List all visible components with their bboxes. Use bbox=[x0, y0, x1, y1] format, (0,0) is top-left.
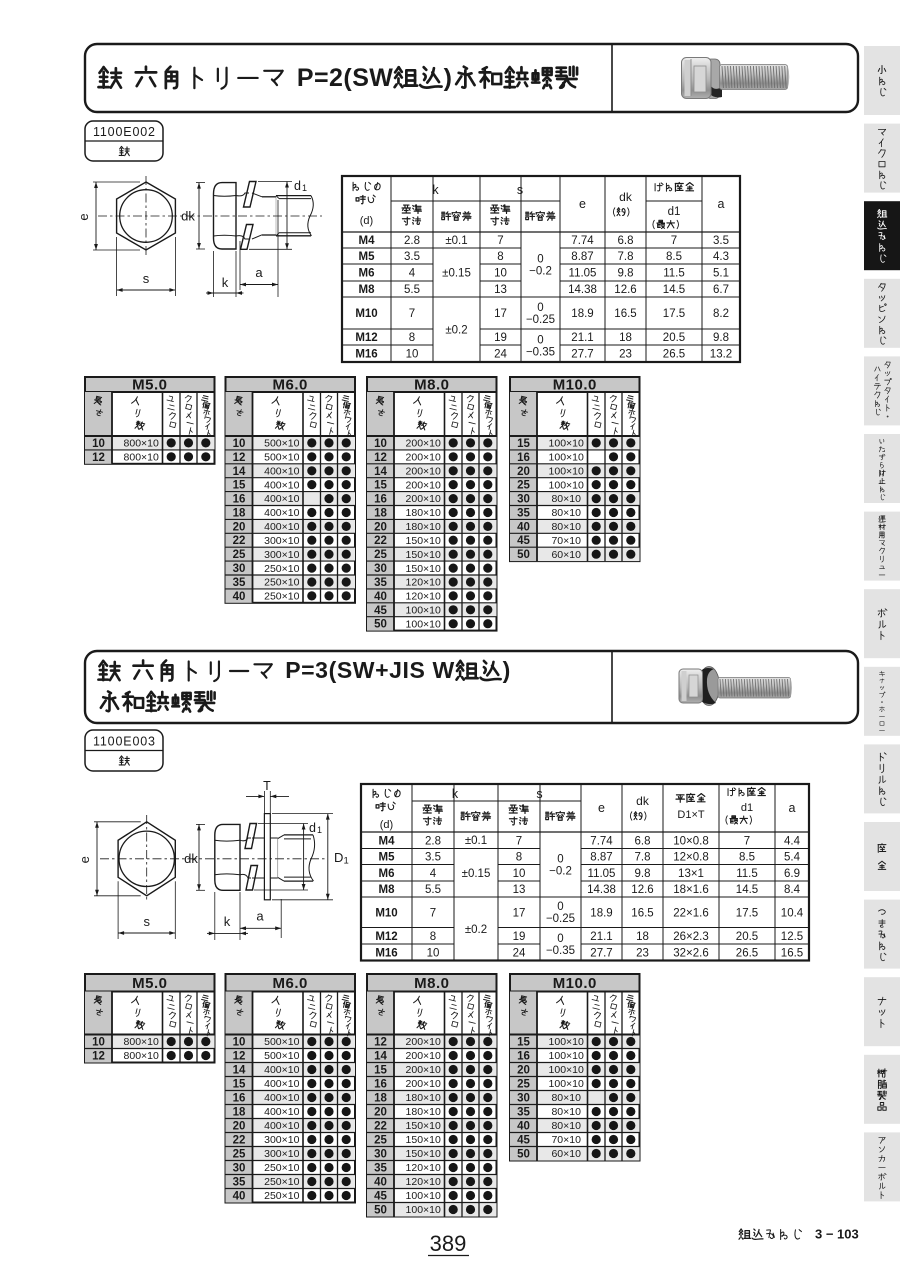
svg-text:M10.0: M10.0 bbox=[553, 377, 597, 394]
svg-text:400×10: 400×10 bbox=[264, 479, 299, 491]
svg-text:60×10: 60×10 bbox=[551, 549, 581, 561]
svg-text:4.4: 4.4 bbox=[784, 835, 801, 847]
svg-text:M5: M5 bbox=[379, 852, 396, 864]
svg-text:7.74: 7.74 bbox=[571, 235, 594, 247]
svg-text:M4: M4 bbox=[379, 835, 396, 847]
svg-text:s: s bbox=[517, 183, 523, 197]
svg-text:6.9: 6.9 bbox=[784, 868, 800, 880]
svg-text:1100E003: 1100E003 bbox=[93, 735, 155, 749]
svg-text:100×10: 100×10 bbox=[549, 452, 584, 464]
svg-text:250×10: 250×10 bbox=[264, 563, 299, 575]
svg-text:12: 12 bbox=[233, 452, 246, 464]
svg-text:M10: M10 bbox=[375, 907, 397, 919]
svg-text:35: 35 bbox=[233, 577, 246, 589]
svg-text:16.5: 16.5 bbox=[614, 308, 636, 320]
svg-text:±0.2: ±0.2 bbox=[445, 325, 467, 337]
svg-text:14: 14 bbox=[233, 1065, 246, 1077]
svg-text:a: a bbox=[256, 909, 264, 924]
svg-text:50: 50 bbox=[517, 1149, 530, 1161]
svg-text:20.5: 20.5 bbox=[736, 931, 758, 943]
svg-text:(d): (d) bbox=[360, 215, 373, 227]
svg-text:14: 14 bbox=[374, 1051, 387, 1063]
svg-text:14: 14 bbox=[374, 466, 387, 478]
svg-text:M6: M6 bbox=[379, 868, 395, 880]
svg-text:M8: M8 bbox=[379, 884, 396, 896]
svg-text:300×10: 300×10 bbox=[264, 549, 299, 561]
svg-text:100×10: 100×10 bbox=[549, 1050, 584, 1062]
svg-text:dk: dk bbox=[619, 190, 633, 204]
svg-text:17.5: 17.5 bbox=[736, 907, 758, 919]
svg-text:250×10: 250×10 bbox=[264, 1190, 299, 1202]
svg-text:14: 14 bbox=[233, 466, 246, 478]
svg-text:10: 10 bbox=[494, 268, 507, 280]
svg-text:40: 40 bbox=[233, 591, 246, 603]
svg-text:7.8: 7.8 bbox=[618, 251, 634, 263]
svg-text:s: s bbox=[143, 914, 150, 929]
svg-text:100×10: 100×10 bbox=[549, 1036, 584, 1048]
svg-text:9.8: 9.8 bbox=[635, 868, 651, 880]
svg-text:500×10: 500×10 bbox=[264, 1050, 299, 1062]
svg-text:1: 1 bbox=[344, 856, 349, 867]
svg-text:M5.0: M5.0 bbox=[132, 377, 167, 394]
svg-text:12: 12 bbox=[374, 452, 387, 464]
svg-text:±0.15: ±0.15 bbox=[462, 868, 491, 880]
svg-text:19: 19 bbox=[494, 332, 507, 344]
svg-text:8: 8 bbox=[430, 931, 436, 943]
svg-text:26×2.3: 26×2.3 bbox=[673, 931, 709, 943]
svg-text:18: 18 bbox=[233, 1107, 246, 1119]
svg-text:): ) bbox=[444, 64, 452, 92]
svg-text:40: 40 bbox=[374, 591, 387, 603]
svg-text:−0.35: −0.35 bbox=[546, 945, 575, 957]
svg-text:80×10: 80×10 bbox=[551, 1120, 581, 1132]
svg-text:150×10: 150×10 bbox=[406, 1148, 441, 1160]
svg-text:80×10: 80×10 bbox=[551, 1092, 581, 1104]
svg-text:40: 40 bbox=[517, 1121, 530, 1133]
svg-text:): ) bbox=[503, 657, 511, 683]
svg-text:12.5: 12.5 bbox=[781, 931, 803, 943]
svg-text:8: 8 bbox=[409, 332, 415, 344]
svg-text:180×10: 180×10 bbox=[406, 1106, 441, 1118]
svg-text:16.5: 16.5 bbox=[781, 947, 803, 959]
svg-text:7: 7 bbox=[497, 235, 503, 247]
svg-text:(d): (d) bbox=[380, 819, 393, 831]
svg-text:18: 18 bbox=[619, 332, 632, 344]
svg-text:11.05: 11.05 bbox=[569, 268, 597, 280]
svg-text:120×10: 120×10 bbox=[406, 577, 441, 589]
svg-text:8.87: 8.87 bbox=[571, 251, 593, 263]
svg-text:250×10: 250×10 bbox=[264, 577, 299, 589]
svg-text:21.1: 21.1 bbox=[590, 931, 612, 943]
svg-text:7: 7 bbox=[516, 835, 522, 847]
svg-text:100×10: 100×10 bbox=[549, 438, 584, 450]
svg-text:4.3: 4.3 bbox=[713, 251, 729, 263]
svg-text:400×10: 400×10 bbox=[264, 465, 299, 477]
svg-text:s: s bbox=[536, 787, 542, 801]
svg-text:k: k bbox=[452, 787, 459, 801]
svg-text:12: 12 bbox=[92, 1051, 105, 1063]
svg-text:T: T bbox=[263, 779, 271, 793]
svg-text:15: 15 bbox=[233, 480, 246, 492]
svg-text:18.9: 18.9 bbox=[590, 907, 612, 919]
svg-text:100×10: 100×10 bbox=[406, 618, 441, 630]
svg-text:a: a bbox=[718, 197, 725, 211]
svg-text:−0.25: −0.25 bbox=[546, 913, 575, 925]
svg-text:250×10: 250×10 bbox=[264, 1162, 299, 1174]
svg-text:25: 25 bbox=[374, 549, 387, 561]
svg-text:24: 24 bbox=[494, 349, 507, 361]
svg-text:18.9: 18.9 bbox=[571, 308, 593, 320]
svg-text:250×10: 250×10 bbox=[264, 591, 299, 603]
svg-text:800×10: 800×10 bbox=[124, 1050, 159, 1062]
svg-text:10: 10 bbox=[92, 438, 105, 450]
svg-text:21.1: 21.1 bbox=[571, 332, 593, 344]
svg-text:389: 389 bbox=[430, 1231, 467, 1256]
svg-text:M16: M16 bbox=[355, 349, 377, 361]
svg-text:11.05: 11.05 bbox=[588, 868, 616, 880]
svg-text:23: 23 bbox=[636, 947, 649, 959]
svg-text:8.2: 8.2 bbox=[713, 308, 729, 320]
svg-text:10: 10 bbox=[513, 868, 526, 880]
svg-text:M4: M4 bbox=[359, 235, 376, 247]
svg-text:40: 40 bbox=[233, 1191, 246, 1203]
svg-text:9.8: 9.8 bbox=[618, 268, 634, 280]
svg-text:45: 45 bbox=[374, 605, 387, 617]
svg-text:0: 0 bbox=[537, 335, 543, 347]
svg-text:35: 35 bbox=[374, 577, 387, 589]
svg-text:22: 22 bbox=[233, 535, 246, 547]
svg-text:10: 10 bbox=[233, 1037, 246, 1049]
svg-text:30: 30 bbox=[374, 1149, 387, 1161]
svg-text:d: d bbox=[309, 821, 316, 835]
svg-text:45: 45 bbox=[517, 535, 530, 547]
svg-text:12: 12 bbox=[374, 1037, 387, 1049]
svg-text:100×10: 100×10 bbox=[406, 1204, 441, 1216]
svg-text:800×10: 800×10 bbox=[124, 1036, 159, 1048]
svg-text:26.5: 26.5 bbox=[663, 349, 685, 361]
svg-text:M6.0: M6.0 bbox=[273, 377, 308, 394]
svg-text:11.5: 11.5 bbox=[736, 868, 758, 880]
svg-text:13×1: 13×1 bbox=[678, 868, 704, 880]
svg-text:1: 1 bbox=[317, 825, 322, 835]
svg-text:80×10: 80×10 bbox=[551, 1106, 581, 1118]
svg-text:35: 35 bbox=[517, 1107, 530, 1119]
svg-text:8.5: 8.5 bbox=[666, 251, 682, 263]
svg-text:14.5: 14.5 bbox=[663, 284, 685, 296]
svg-text:400×10: 400×10 bbox=[264, 1106, 299, 1118]
svg-text:M16: M16 bbox=[375, 947, 397, 959]
svg-text:0: 0 bbox=[537, 302, 543, 314]
svg-text:−0.2: −0.2 bbox=[529, 266, 552, 278]
svg-text:16: 16 bbox=[374, 494, 387, 506]
svg-text:800×10: 800×10 bbox=[124, 452, 159, 464]
svg-text:−0.25: −0.25 bbox=[526, 314, 555, 326]
svg-text:e: e bbox=[76, 213, 91, 220]
svg-text:6.7: 6.7 bbox=[713, 284, 729, 296]
svg-text:25: 25 bbox=[233, 549, 246, 561]
svg-text:200×10: 200×10 bbox=[406, 465, 441, 477]
svg-text:8.5: 8.5 bbox=[739, 852, 755, 864]
svg-text:25: 25 bbox=[517, 1079, 530, 1091]
svg-text:17.5: 17.5 bbox=[663, 308, 685, 320]
svg-text:100×10: 100×10 bbox=[406, 605, 441, 617]
svg-text:30: 30 bbox=[517, 1093, 530, 1105]
svg-text:30: 30 bbox=[374, 563, 387, 575]
svg-text:7: 7 bbox=[430, 907, 436, 919]
svg-text:60×10: 60×10 bbox=[551, 1148, 581, 1160]
svg-text:20: 20 bbox=[233, 521, 246, 533]
svg-text:14.38: 14.38 bbox=[587, 884, 616, 896]
svg-text:18×1.6: 18×1.6 bbox=[673, 884, 709, 896]
svg-text:12.6: 12.6 bbox=[631, 884, 653, 896]
svg-text:20: 20 bbox=[233, 1121, 246, 1133]
svg-text:11.5: 11.5 bbox=[663, 268, 685, 280]
svg-text:27.7: 27.7 bbox=[571, 349, 593, 361]
svg-text:5.5: 5.5 bbox=[404, 284, 420, 296]
svg-text:±0.1: ±0.1 bbox=[445, 235, 467, 247]
svg-text:M8.0: M8.0 bbox=[414, 975, 449, 992]
svg-text:k: k bbox=[432, 183, 439, 197]
svg-text:100×10: 100×10 bbox=[549, 1064, 584, 1076]
svg-text:18: 18 bbox=[233, 508, 246, 520]
svg-text:M12: M12 bbox=[375, 931, 397, 943]
svg-text:300×10: 300×10 bbox=[264, 1134, 299, 1146]
svg-text:15: 15 bbox=[517, 438, 530, 450]
svg-text:3 − 103: 3 − 103 bbox=[815, 1227, 859, 1242]
svg-text:10×0.8: 10×0.8 bbox=[673, 835, 709, 847]
svg-text:10: 10 bbox=[92, 1037, 105, 1049]
svg-text:12: 12 bbox=[233, 1051, 246, 1063]
svg-text:P=3(SW+JIS W: P=3(SW+JIS W bbox=[285, 657, 454, 683]
svg-text:30: 30 bbox=[233, 563, 246, 575]
svg-text:500×10: 500×10 bbox=[264, 452, 299, 464]
svg-text:3.5: 3.5 bbox=[425, 852, 441, 864]
svg-text:−0.35: −0.35 bbox=[526, 347, 555, 359]
svg-text:400×10: 400×10 bbox=[264, 521, 299, 533]
svg-text:2.8: 2.8 bbox=[404, 235, 420, 247]
svg-text:5.1: 5.1 bbox=[713, 268, 729, 280]
svg-text:180×10: 180×10 bbox=[406, 1092, 441, 1104]
svg-text:0: 0 bbox=[557, 933, 563, 945]
svg-text:24: 24 bbox=[513, 947, 526, 959]
svg-text:35: 35 bbox=[517, 508, 530, 520]
svg-text:120×10: 120×10 bbox=[406, 1176, 441, 1188]
svg-text:1100E002: 1100E002 bbox=[93, 125, 155, 139]
svg-text:5.4: 5.4 bbox=[784, 852, 801, 864]
svg-text:D1×T: D1×T bbox=[677, 809, 704, 821]
svg-text:200×10: 200×10 bbox=[406, 479, 441, 491]
svg-text:12: 12 bbox=[92, 452, 105, 464]
svg-text:150×10: 150×10 bbox=[406, 1120, 441, 1132]
svg-text:250×10: 250×10 bbox=[264, 1176, 299, 1188]
svg-text:35: 35 bbox=[374, 1163, 387, 1175]
svg-text:k: k bbox=[224, 914, 231, 929]
svg-text:13: 13 bbox=[494, 284, 507, 296]
svg-text:8.87: 8.87 bbox=[590, 852, 612, 864]
svg-text:30: 30 bbox=[517, 494, 530, 506]
svg-text:30: 30 bbox=[233, 1163, 246, 1175]
svg-text:80×10: 80×10 bbox=[551, 507, 581, 519]
svg-text:80×10: 80×10 bbox=[551, 493, 581, 505]
svg-text:5.5: 5.5 bbox=[425, 884, 441, 896]
svg-text:16: 16 bbox=[233, 494, 246, 506]
svg-text:e: e bbox=[598, 801, 605, 815]
svg-text:7.8: 7.8 bbox=[635, 852, 651, 864]
svg-text:25: 25 bbox=[517, 480, 530, 492]
svg-text:26.5: 26.5 bbox=[736, 947, 758, 959]
svg-text:500×10: 500×10 bbox=[264, 1036, 299, 1048]
svg-text:e: e bbox=[579, 197, 586, 211]
svg-text:dk: dk bbox=[184, 851, 198, 866]
svg-text:14.38: 14.38 bbox=[568, 284, 597, 296]
svg-text:22: 22 bbox=[374, 1121, 387, 1133]
svg-text:16.5: 16.5 bbox=[631, 907, 653, 919]
svg-text:150×10: 150×10 bbox=[406, 535, 441, 547]
svg-text:400×10: 400×10 bbox=[264, 1064, 299, 1076]
svg-text:7: 7 bbox=[744, 835, 750, 847]
svg-text:180×10: 180×10 bbox=[406, 507, 441, 519]
svg-text:8.4: 8.4 bbox=[784, 884, 801, 896]
svg-text:6.8: 6.8 bbox=[635, 835, 651, 847]
svg-text:200×10: 200×10 bbox=[406, 1050, 441, 1062]
svg-text:3.5: 3.5 bbox=[713, 235, 729, 247]
svg-text:20.5: 20.5 bbox=[663, 332, 685, 344]
svg-text:a: a bbox=[255, 265, 263, 280]
svg-text:16: 16 bbox=[374, 1079, 387, 1091]
svg-text:M6: M6 bbox=[359, 268, 375, 280]
svg-text:7: 7 bbox=[409, 308, 415, 320]
svg-text:12×0.8: 12×0.8 bbox=[673, 852, 709, 864]
svg-text:M12: M12 bbox=[355, 332, 377, 344]
svg-text:150×10: 150×10 bbox=[406, 563, 441, 575]
svg-text:120×10: 120×10 bbox=[406, 591, 441, 603]
svg-text:100×10: 100×10 bbox=[549, 479, 584, 491]
svg-text:80×10: 80×10 bbox=[551, 521, 581, 533]
svg-text:18: 18 bbox=[374, 1093, 387, 1105]
svg-text:120×10: 120×10 bbox=[406, 1162, 441, 1174]
svg-text:100×10: 100×10 bbox=[549, 1078, 584, 1090]
svg-text:2.8: 2.8 bbox=[425, 835, 441, 847]
svg-text:22: 22 bbox=[233, 1135, 246, 1147]
svg-text:23: 23 bbox=[619, 349, 632, 361]
svg-text:10.4: 10.4 bbox=[781, 907, 804, 919]
svg-text:12.6: 12.6 bbox=[614, 284, 636, 296]
svg-text:D: D bbox=[334, 850, 343, 865]
svg-text:M8.0: M8.0 bbox=[414, 377, 449, 394]
svg-text:200×10: 200×10 bbox=[406, 1036, 441, 1048]
svg-text:M10: M10 bbox=[355, 308, 377, 320]
svg-text:20: 20 bbox=[517, 1065, 530, 1077]
svg-text:150×10: 150×10 bbox=[406, 549, 441, 561]
svg-text:180×10: 180×10 bbox=[406, 521, 441, 533]
svg-text:0: 0 bbox=[537, 254, 543, 266]
svg-text:8: 8 bbox=[516, 852, 522, 864]
svg-text:10: 10 bbox=[406, 349, 419, 361]
svg-text:200×10: 200×10 bbox=[406, 1064, 441, 1076]
svg-text:400×10: 400×10 bbox=[264, 507, 299, 519]
svg-text:17: 17 bbox=[513, 907, 526, 919]
svg-text:35: 35 bbox=[233, 1177, 246, 1189]
svg-text:40: 40 bbox=[517, 521, 530, 533]
svg-text:400×10: 400×10 bbox=[264, 1120, 299, 1132]
svg-text:15: 15 bbox=[374, 1065, 387, 1077]
svg-text:400×10: 400×10 bbox=[264, 1078, 299, 1090]
svg-text:±0.2: ±0.2 bbox=[465, 924, 487, 936]
svg-text:15: 15 bbox=[233, 1079, 246, 1091]
svg-text:d1: d1 bbox=[668, 206, 681, 218]
svg-text:s: s bbox=[143, 271, 150, 286]
svg-text:18: 18 bbox=[374, 508, 387, 520]
svg-text:dk: dk bbox=[181, 209, 195, 224]
svg-text:16: 16 bbox=[517, 1051, 530, 1063]
svg-text:0: 0 bbox=[557, 854, 563, 866]
svg-text:8: 8 bbox=[497, 251, 503, 263]
svg-text:200×10: 200×10 bbox=[406, 452, 441, 464]
svg-text:40: 40 bbox=[374, 1177, 387, 1189]
svg-text:6.8: 6.8 bbox=[618, 235, 634, 247]
svg-text:7.74: 7.74 bbox=[590, 835, 613, 847]
svg-text:32×2.6: 32×2.6 bbox=[673, 947, 709, 959]
svg-text:10: 10 bbox=[374, 438, 387, 450]
svg-text:100×10: 100×10 bbox=[406, 1190, 441, 1202]
svg-text:d: d bbox=[294, 179, 301, 193]
svg-text:M8: M8 bbox=[359, 284, 376, 296]
svg-text:100×10: 100×10 bbox=[549, 465, 584, 477]
svg-text:300×10: 300×10 bbox=[264, 1148, 299, 1160]
svg-text:22×1.6: 22×1.6 bbox=[673, 907, 709, 919]
svg-text:13.2: 13.2 bbox=[710, 349, 732, 361]
svg-text:19: 19 bbox=[513, 931, 526, 943]
svg-text:20: 20 bbox=[374, 521, 387, 533]
svg-text:70×10: 70×10 bbox=[551, 535, 581, 547]
svg-text:4: 4 bbox=[409, 268, 416, 280]
svg-text:50: 50 bbox=[374, 619, 387, 631]
svg-text:500×10: 500×10 bbox=[264, 438, 299, 450]
svg-text:−0.2: −0.2 bbox=[549, 866, 572, 878]
svg-text:10: 10 bbox=[427, 947, 440, 959]
svg-text:M6.0: M6.0 bbox=[273, 975, 308, 992]
svg-text:27.7: 27.7 bbox=[590, 947, 612, 959]
svg-text:300×10: 300×10 bbox=[264, 535, 299, 547]
svg-text:50: 50 bbox=[517, 549, 530, 561]
svg-text:25: 25 bbox=[374, 1135, 387, 1147]
svg-text:22: 22 bbox=[374, 535, 387, 547]
svg-text:4: 4 bbox=[430, 868, 437, 880]
svg-text:200×10: 200×10 bbox=[406, 438, 441, 450]
svg-text:70×10: 70×10 bbox=[551, 1134, 581, 1146]
svg-text:15: 15 bbox=[517, 1037, 530, 1049]
svg-text:1: 1 bbox=[302, 183, 307, 193]
svg-text:13: 13 bbox=[513, 884, 526, 896]
svg-text:±0.15: ±0.15 bbox=[442, 268, 471, 280]
svg-text:150×10: 150×10 bbox=[406, 1134, 441, 1146]
svg-text:17: 17 bbox=[494, 308, 507, 320]
svg-text:k: k bbox=[222, 275, 229, 290]
svg-text:200×10: 200×10 bbox=[406, 1078, 441, 1090]
svg-text:M5.0: M5.0 bbox=[132, 975, 167, 992]
svg-text:dk: dk bbox=[636, 794, 650, 808]
svg-text:14.5: 14.5 bbox=[736, 884, 758, 896]
svg-text:9.8: 9.8 bbox=[713, 332, 729, 344]
svg-text:16: 16 bbox=[517, 452, 530, 464]
svg-text:20: 20 bbox=[517, 466, 530, 478]
svg-text:15: 15 bbox=[374, 480, 387, 492]
svg-text:0: 0 bbox=[557, 901, 563, 913]
svg-text:3.5: 3.5 bbox=[404, 251, 420, 263]
svg-text:a: a bbox=[789, 801, 796, 815]
svg-text:7: 7 bbox=[671, 235, 677, 247]
svg-text:16: 16 bbox=[233, 1093, 246, 1105]
